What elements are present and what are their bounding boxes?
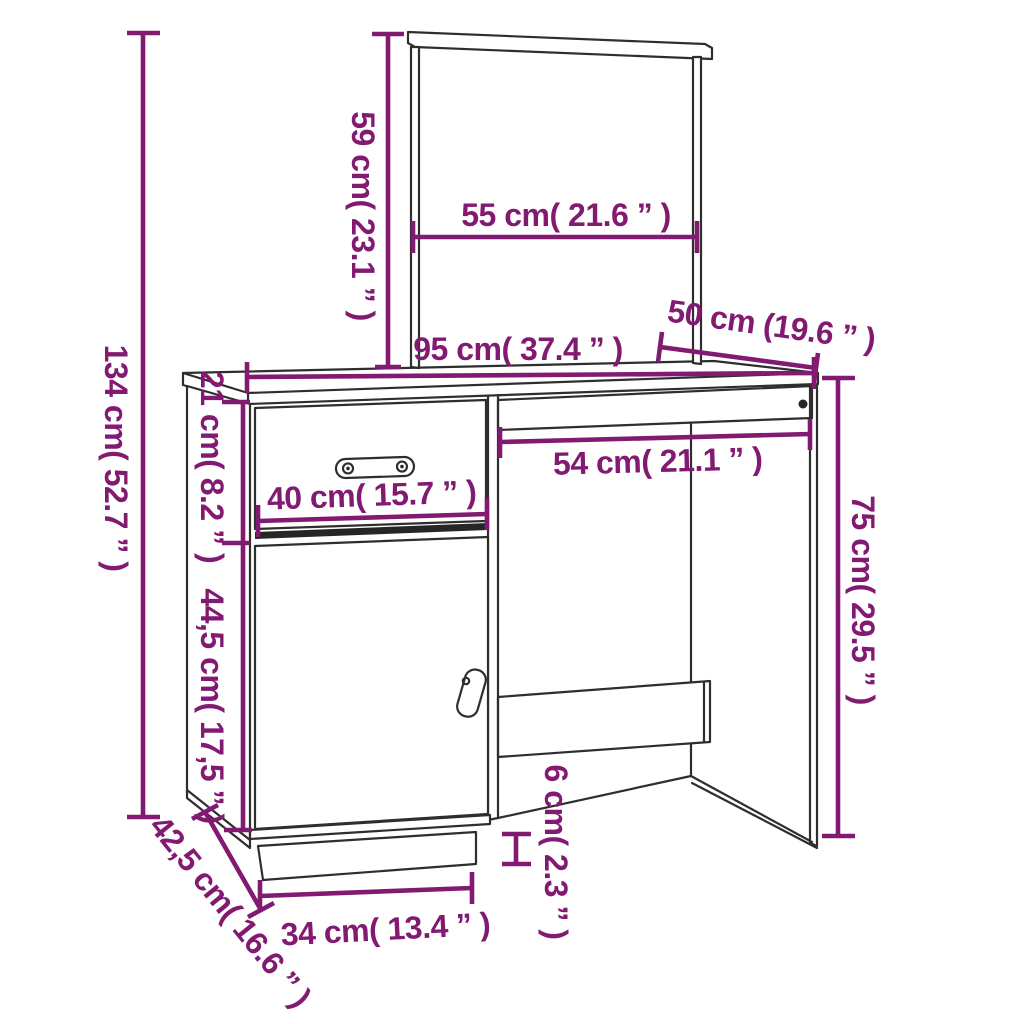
cabinet-door bbox=[255, 537, 488, 829]
dimension-diagram: 134 cm( 52.7 ” ) 59 cm( 23.1 ” ) 55 cm( … bbox=[0, 0, 1024, 1024]
stretcher-bar bbox=[498, 681, 710, 757]
dim-label-total-height: 134 cm( 52.7 ” ) bbox=[98, 345, 134, 572]
cabinet-right-wall bbox=[488, 395, 498, 820]
dim-label-mirror-width: 55 cm( 21.6 ” ) bbox=[461, 197, 671, 233]
plinth bbox=[258, 832, 476, 880]
dim-label-drawer-height: 21 cm( 8.2 ” ) bbox=[194, 371, 230, 563]
dimension-labels: 134 cm( 52.7 ” ) 59 cm( 23.1 ” ) 55 cm( … bbox=[98, 111, 881, 1014]
mirror-left-stile bbox=[411, 47, 419, 368]
mirror-top-frame bbox=[408, 32, 712, 59]
tray-knob bbox=[799, 400, 808, 409]
dressing-table-diagram-canvas: 134 cm( 52.7 ” ) 59 cm( 23.1 ” ) 55 cm( … bbox=[0, 0, 1024, 1024]
dim-label-plinth-width: 34 cm( 13.4 ” ) bbox=[280, 906, 491, 953]
dim-label-plinth-height: 6 cm( 2.3 ” ) bbox=[538, 765, 574, 940]
dim-label-base-depth: 42,5 cm( 16.6 ” ) bbox=[143, 808, 319, 1013]
dim-label-door-height: 44,5 cm( 17,5 ” ) bbox=[194, 588, 230, 823]
dim-label-drawer-width: 40 cm( 15.7 ” ) bbox=[266, 473, 477, 516]
dim-label-mirror-height: 59 cm( 23.1 ” ) bbox=[345, 111, 381, 321]
dim-label-knee-space-width: 54 cm( 21.1 ” ) bbox=[553, 440, 763, 481]
dim-label-desktop-width: 95 cm( 37.4 ” ) bbox=[413, 331, 623, 367]
dim-label-under-top-height: 75 cm( 29.5 ” ) bbox=[845, 495, 881, 705]
kneehole-floor-line bbox=[498, 776, 691, 818]
dim-line-plinth-height bbox=[502, 834, 531, 864]
